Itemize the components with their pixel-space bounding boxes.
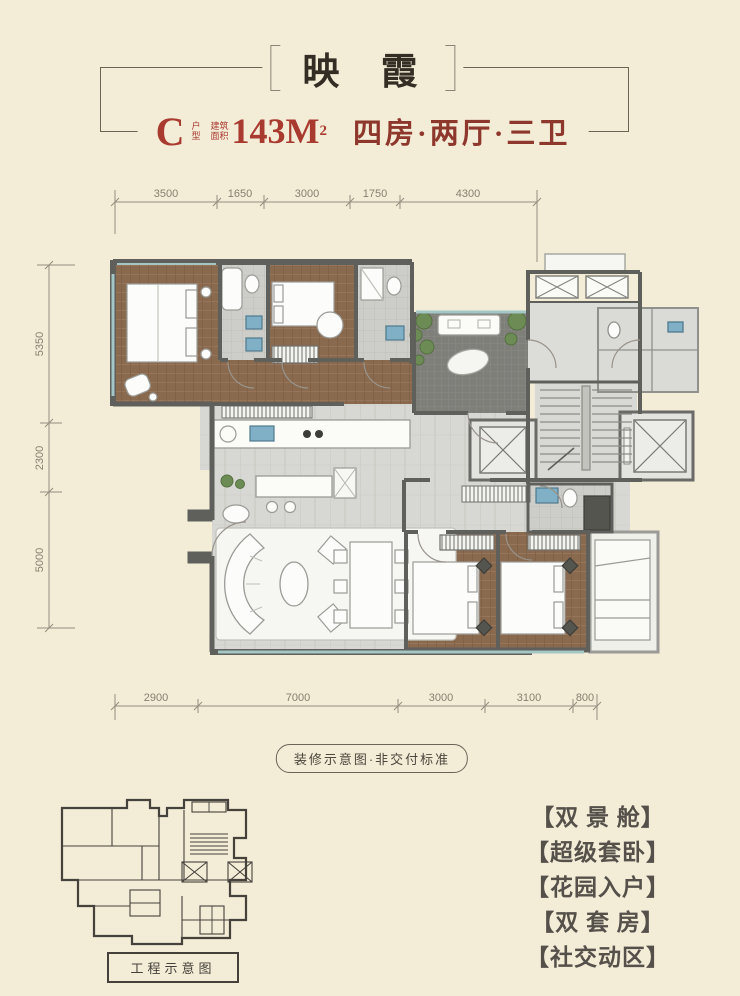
dining-table <box>350 542 392 628</box>
dim-label: 3100 <box>517 692 541 704</box>
coffee-table <box>280 562 308 606</box>
garden-bench <box>438 315 500 335</box>
engineering-caption: 工程示意图 <box>107 952 239 983</box>
hallway-wood-floor <box>220 360 412 404</box>
dim-label: 4300 <box>456 188 480 200</box>
plant-icon <box>236 480 245 489</box>
dim-label: 7000 <box>286 692 310 704</box>
engineering-diagram <box>62 800 252 944</box>
sink-icon <box>246 338 262 351</box>
shower-icon <box>584 496 610 530</box>
dim-label: 5000 <box>34 548 46 572</box>
kitchen-counter <box>214 420 410 448</box>
feature-item: 【花园入户】 <box>518 870 678 905</box>
toilet-icon <box>563 489 577 507</box>
sink-icon <box>386 326 404 340</box>
dim-label: 800 <box>576 692 594 704</box>
dim-label: 1650 <box>228 188 252 200</box>
toilet-icon <box>387 277 401 295</box>
wardrobe <box>440 535 494 550</box>
dim-label: 1750 <box>363 188 387 200</box>
corridor-wardrobe <box>462 486 530 502</box>
floorplan-page: { "header": { "title": "映 霞", "unit": "C… <box>0 0 740 996</box>
feature-item: 【超级套卧】 <box>518 835 678 870</box>
dim-label: 2900 <box>144 692 168 704</box>
plant-icon <box>221 475 233 487</box>
entry-stool <box>223 505 249 523</box>
feature-list: 【双 景 舱】 【超级套卧】 【花园入户】 【双 套 房】 【社交动区】 <box>518 800 678 975</box>
stove-burner-icon <box>315 430 323 438</box>
vent-shafts-icon <box>536 276 628 298</box>
dim-label: 3500 <box>154 188 178 200</box>
plan-disclaimer: 装修示意图·非交付标准 <box>276 744 468 773</box>
stove-burner-icon <box>303 430 311 438</box>
sink-icon <box>536 488 558 503</box>
dining-set <box>334 542 408 628</box>
sink-icon <box>246 316 262 329</box>
dim-label: 5350 <box>34 332 46 356</box>
dim-label: 3000 <box>429 692 453 704</box>
wardrobe <box>528 535 580 550</box>
hallway-closet <box>222 406 312 418</box>
mini-stairs-icon <box>190 834 228 854</box>
kitchen-sink-icon <box>250 426 274 441</box>
balcony <box>595 540 650 640</box>
bathtub-icon <box>222 268 242 310</box>
toilet-icon <box>245 275 259 293</box>
kitchen-island <box>256 476 332 497</box>
feature-item: 【社交动区】 <box>518 940 678 975</box>
feature-item: 【双 套 房】 <box>518 905 678 940</box>
round-rug <box>317 312 343 338</box>
dim-label: 3000 <box>295 188 319 200</box>
dim-label: 2300 <box>34 446 46 470</box>
feature-item: 【双 景 舱】 <box>518 800 678 835</box>
